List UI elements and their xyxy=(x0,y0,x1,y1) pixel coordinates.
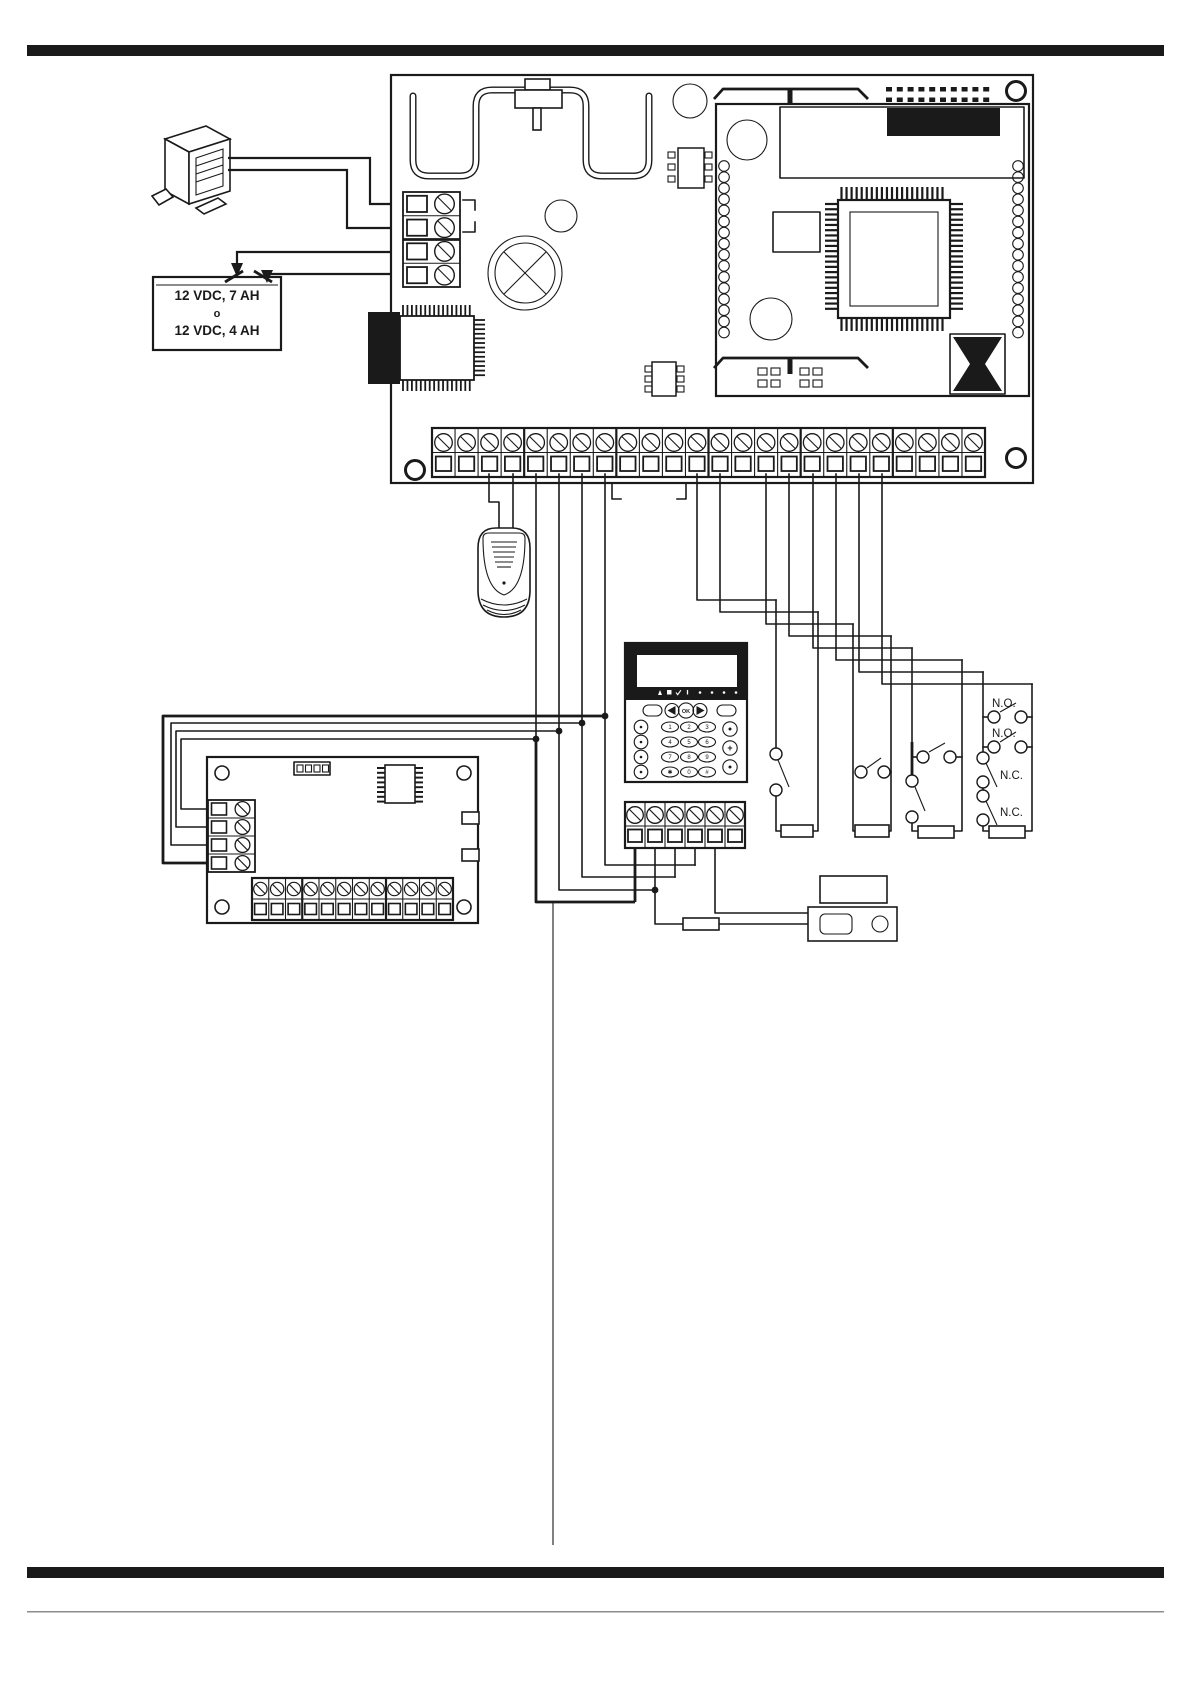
terminal-cell xyxy=(212,821,227,833)
wiring-diagram: 12 VDC, 7 AH o 12 VDC, 4 AH xyxy=(0,0,1192,1685)
battery-label-or: o xyxy=(214,308,221,320)
junction-dot xyxy=(556,728,563,735)
terminal-cell xyxy=(407,196,427,212)
solder-pad xyxy=(940,98,946,103)
switch-contact-icon xyxy=(1015,711,1027,723)
terminal-cell xyxy=(389,904,401,915)
zone-wire xyxy=(720,474,818,612)
terminal-cell xyxy=(288,904,300,915)
switch-contact-icon xyxy=(977,790,989,802)
main-processor-ic xyxy=(368,305,485,391)
junction-dot xyxy=(533,736,540,743)
terminal-cell xyxy=(628,830,642,843)
mounting-hole-icon xyxy=(1007,82,1026,101)
terminal-cell xyxy=(828,457,843,472)
junction-dot xyxy=(602,713,609,720)
contact-magnet xyxy=(820,876,887,903)
voltage-regulator xyxy=(515,90,562,108)
zone-wire xyxy=(853,624,855,831)
expansion-output-terminals xyxy=(252,878,453,920)
terminal-cell xyxy=(574,457,589,472)
home-icon xyxy=(667,690,672,695)
solder-pad xyxy=(908,87,914,92)
solder-pad xyxy=(897,98,903,103)
contact-wire-1 xyxy=(655,848,683,924)
terminal-cell xyxy=(943,457,958,472)
solder-pad xyxy=(983,98,989,103)
optocoupler-icon xyxy=(678,148,704,188)
terminal-cell xyxy=(551,457,566,472)
top-rule xyxy=(27,45,1164,56)
battery: 12 VDC, 7 AH o 12 VDC, 4 AH xyxy=(153,271,281,350)
terminal-cell xyxy=(372,904,384,915)
lcd-display xyxy=(637,655,737,687)
zone-wire xyxy=(697,474,776,600)
solder-pad xyxy=(886,98,892,103)
zone-wire xyxy=(766,474,853,624)
terminal-cell xyxy=(436,457,451,472)
edge-tab xyxy=(462,812,479,824)
terminal-cell xyxy=(804,457,819,472)
mounting-hole-icon xyxy=(1007,449,1026,468)
terminal-cell xyxy=(405,904,417,915)
keypad: OK123456789✱0#+ xyxy=(625,643,747,848)
terminal-cell xyxy=(528,457,543,472)
eol-resistor xyxy=(918,826,954,838)
zone-led-icon xyxy=(711,691,714,694)
switch-blade xyxy=(867,758,881,768)
arrow-icon xyxy=(231,263,243,277)
zone-wire xyxy=(954,660,962,831)
switch-blade xyxy=(915,787,925,811)
terminal-cell xyxy=(597,457,612,472)
zone4-switch-label-2: N.O. xyxy=(992,728,1016,740)
solder-pad xyxy=(962,98,968,103)
switch-contact-icon xyxy=(977,752,989,764)
solder-pad xyxy=(918,87,924,92)
switch-contact-icon xyxy=(988,741,1000,753)
junction-dot xyxy=(579,720,586,727)
solder-pad xyxy=(951,98,957,103)
battery-label-1: 12 VDC, 7 AH xyxy=(174,288,259,303)
zone-wire xyxy=(813,474,912,648)
zone4-switch-label-1: N.O. xyxy=(992,698,1016,710)
main-control-board xyxy=(368,75,1033,483)
zone-wire xyxy=(859,474,983,672)
terminal-cell xyxy=(505,457,520,472)
solder-pad xyxy=(886,87,892,92)
terminal-cell xyxy=(728,830,742,843)
solder-pad xyxy=(897,87,903,92)
switch-contact-icon xyxy=(906,811,918,823)
battery-label-2: 12 VDC, 4 AH xyxy=(174,323,259,338)
door-contact xyxy=(655,848,897,941)
terminal-cell xyxy=(271,904,283,915)
transformer-wire-2 xyxy=(228,170,403,228)
terminal-cell xyxy=(851,457,866,472)
terminal-cell xyxy=(668,830,682,843)
solder-pad xyxy=(962,87,968,92)
battery-wire-1 xyxy=(237,252,403,265)
main-terminal-strip xyxy=(432,428,985,477)
switch-contact-icon xyxy=(878,766,890,778)
terminal-cell xyxy=(648,830,662,843)
contact-wire-2 xyxy=(715,848,808,913)
switch-contact-icon xyxy=(1015,741,1027,753)
switch-contact-icon xyxy=(770,748,782,760)
terminal-cell xyxy=(422,904,434,915)
switch-contact-icon xyxy=(917,751,929,763)
terminal-cell xyxy=(897,457,912,472)
regulator-tab xyxy=(525,79,550,90)
eol-resistor xyxy=(683,918,719,930)
transformer-wire-1 xyxy=(228,158,403,204)
terminal-cell xyxy=(338,904,350,915)
terminal-cell xyxy=(255,904,267,915)
eol-resistor xyxy=(855,825,889,837)
terminal-cell xyxy=(758,457,773,472)
terminal-bracket-mark xyxy=(677,483,686,499)
zone-wire xyxy=(882,474,1032,684)
solder-pad xyxy=(972,87,978,92)
terminal-cell xyxy=(688,830,702,843)
eol-resistor xyxy=(989,826,1025,838)
terminal-cell xyxy=(735,457,750,472)
terminal-cell xyxy=(708,830,722,843)
zone-wire xyxy=(1025,684,1032,831)
terminal-cell xyxy=(966,457,981,472)
solder-pad xyxy=(940,87,946,92)
transformer xyxy=(152,126,230,214)
solder-pad xyxy=(929,98,935,103)
qfp-processor xyxy=(838,200,950,318)
zone-led-icon xyxy=(723,691,726,694)
terminal-cell xyxy=(781,457,796,472)
switch-contact-icon xyxy=(770,784,782,796)
terminal-cell xyxy=(305,904,317,915)
plus-key-label: + xyxy=(727,743,732,753)
processor-module xyxy=(714,87,1029,396)
zone-led-icon xyxy=(699,691,702,694)
terminal-cell xyxy=(482,457,497,472)
keypad-terminal-strip xyxy=(625,802,745,848)
terminal-cell xyxy=(407,220,427,236)
terminal-cell xyxy=(212,803,227,815)
bottom-hairline xyxy=(27,1611,1164,1613)
expansion-module xyxy=(207,757,479,923)
switch-blade xyxy=(929,743,945,752)
optocoupler-icon xyxy=(652,362,676,396)
solder-pad xyxy=(918,98,924,103)
expansion-bus-terminals xyxy=(208,800,255,872)
switch-contact-icon xyxy=(855,766,867,778)
regulator-lead xyxy=(533,108,541,130)
terminal-cell xyxy=(407,243,427,259)
eol-resistor xyxy=(781,825,813,837)
switch-contact-icon xyxy=(906,775,918,787)
solder-pad xyxy=(972,98,978,103)
terminal-cell xyxy=(459,457,474,472)
zone-wire xyxy=(836,474,962,660)
terminal-cell xyxy=(643,457,658,472)
zone-wire xyxy=(889,636,891,831)
terminal-cell xyxy=(620,457,635,472)
terminal-cell xyxy=(689,457,704,472)
zone-led-icon xyxy=(735,691,738,694)
solder-pad xyxy=(983,87,989,92)
terminal-bracket-mark xyxy=(612,483,621,499)
module-connector xyxy=(887,108,1000,136)
solder-pad xyxy=(929,87,935,92)
mounting-hole-icon xyxy=(406,461,425,480)
zone4-switch-label-3: N.C. xyxy=(1000,770,1023,782)
switch-contact-icon xyxy=(977,776,989,788)
zone-wire xyxy=(912,823,918,831)
terminal-cell xyxy=(212,839,227,851)
zone4-switch-label-4: N.C. xyxy=(1000,807,1023,819)
terminal-cell xyxy=(874,457,889,472)
power-terminal-block xyxy=(403,192,460,287)
manual-page: 12 VDC, 7 AH o 12 VDC, 4 AH xyxy=(0,0,1192,1685)
terminal-cell xyxy=(212,857,227,869)
terminal-cell xyxy=(322,904,334,915)
bottom-rule xyxy=(27,1567,1164,1578)
terminal-cell xyxy=(920,457,935,472)
number-key-label: ✱ xyxy=(667,769,672,776)
zone-wire xyxy=(983,826,989,831)
solder-pad xyxy=(908,98,914,103)
ok-key-label: OK xyxy=(682,709,690,715)
siren xyxy=(478,528,530,617)
switch-contact-icon xyxy=(988,711,1000,723)
terminal-cell xyxy=(712,457,727,472)
zone-switches xyxy=(770,703,1027,826)
terminal-cell xyxy=(355,904,367,915)
solder-pad xyxy=(951,87,957,92)
terminal-cell xyxy=(666,457,681,472)
ic-body xyxy=(400,316,474,380)
switch-contact-icon xyxy=(944,751,956,763)
power-wiring xyxy=(228,158,403,283)
terminal-cell xyxy=(407,267,427,283)
switch-blade xyxy=(778,760,789,787)
edge-tab xyxy=(462,849,479,861)
black-capacitor xyxy=(368,312,400,384)
switch-contact-icon xyxy=(977,814,989,826)
terminal-cell xyxy=(439,904,451,915)
